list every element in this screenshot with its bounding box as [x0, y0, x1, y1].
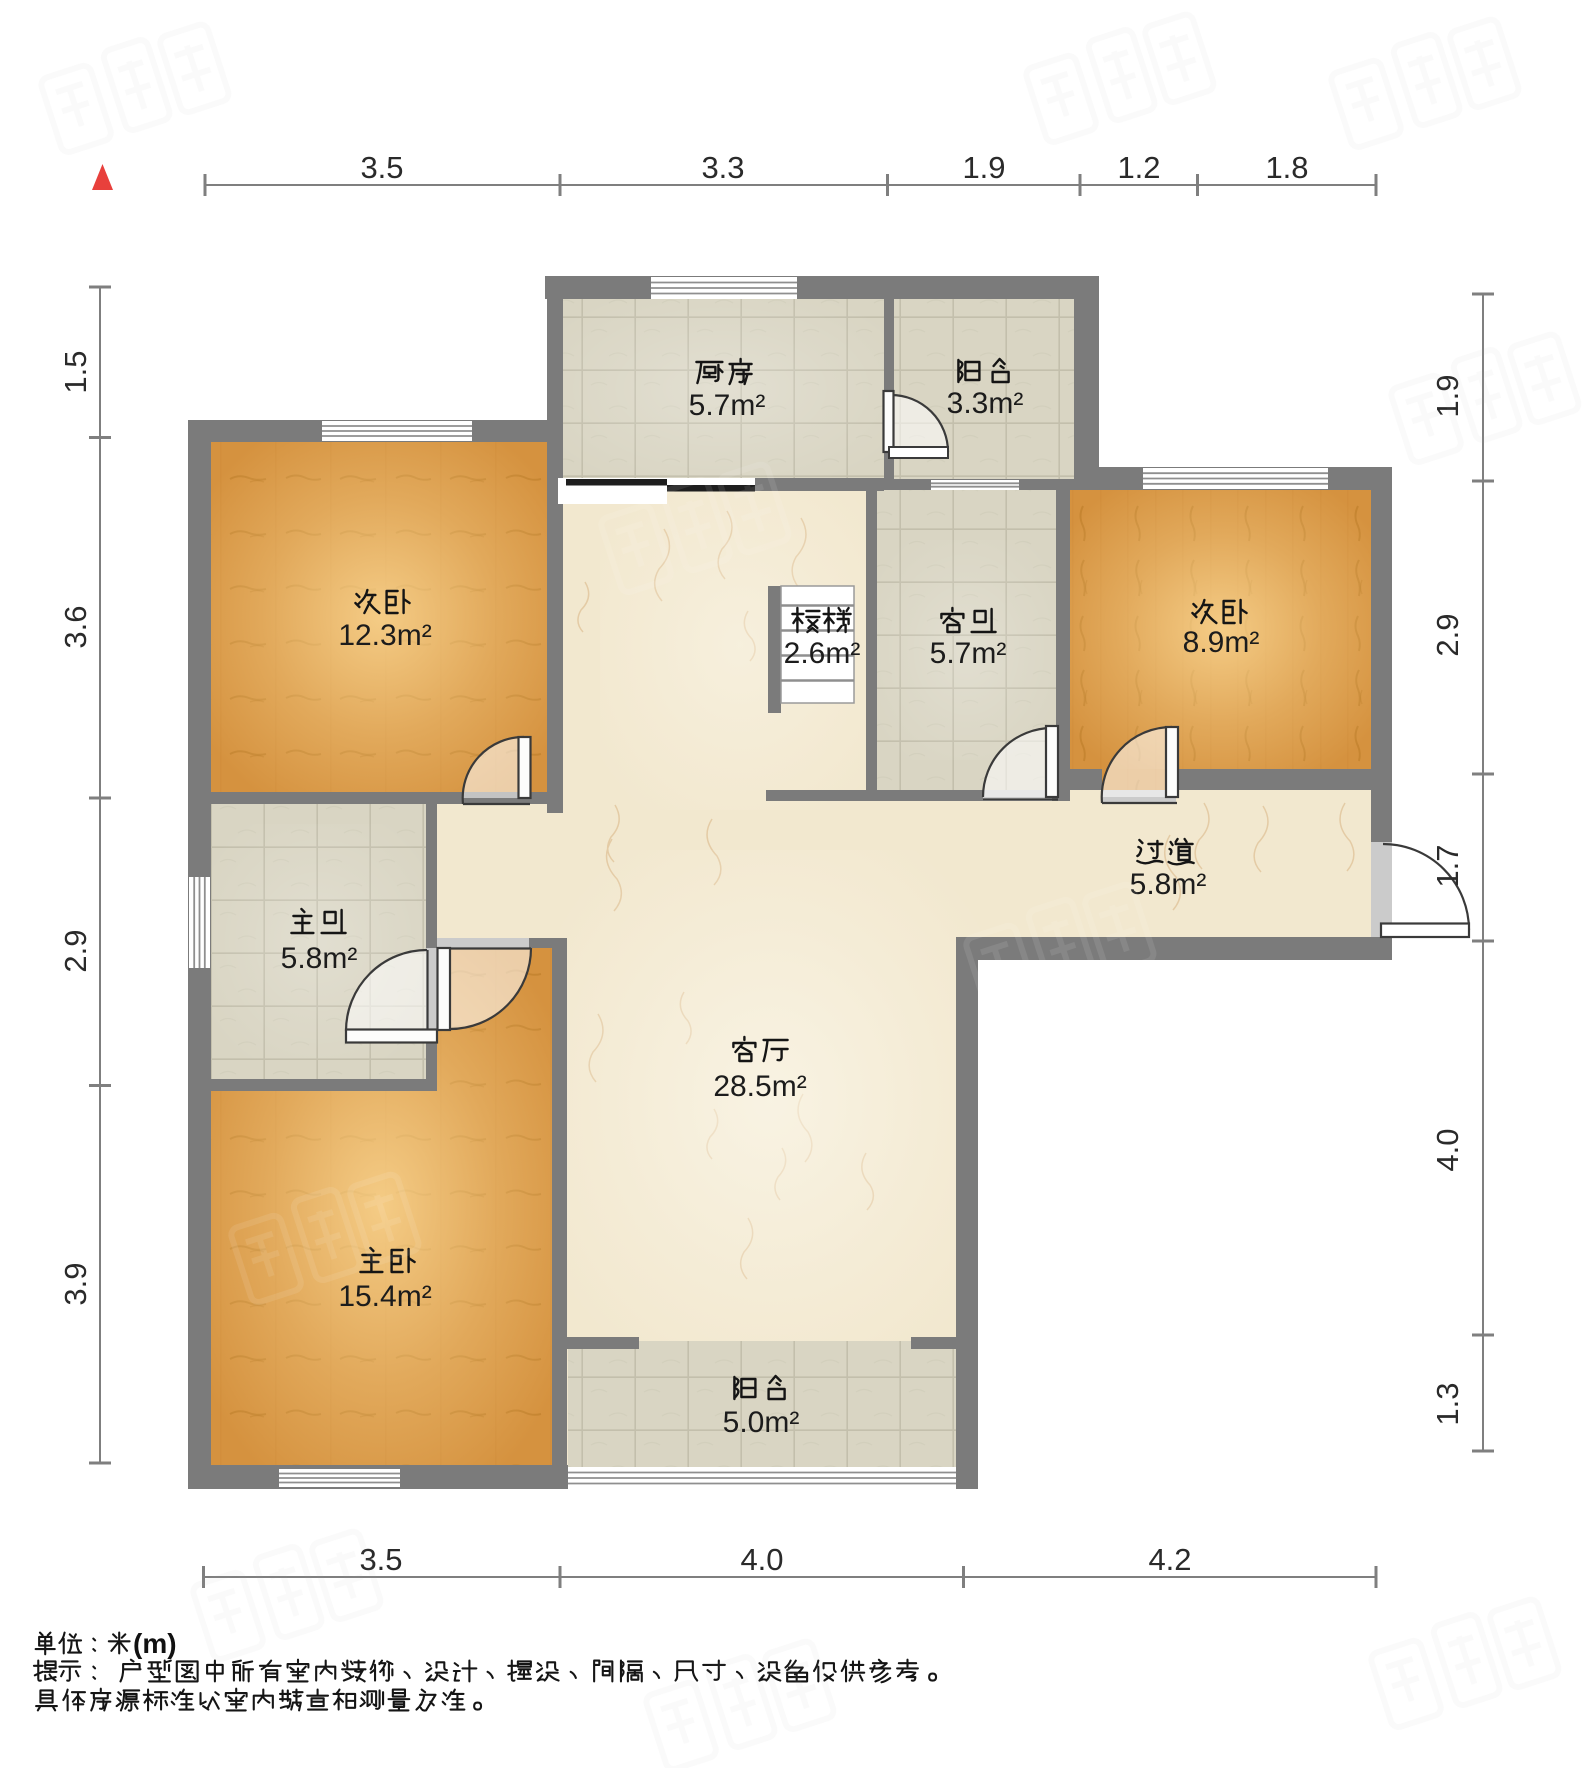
svg-text:4.0: 4.0	[740, 1542, 783, 1577]
svg-text:5.8m²: 5.8m²	[1130, 868, 1207, 901]
svg-text:1.9: 1.9	[962, 150, 1005, 185]
svg-text:1.7: 1.7	[1430, 844, 1465, 887]
svg-text:3.5: 3.5	[360, 150, 403, 185]
svg-text:15.4m²: 15.4m²	[338, 1280, 431, 1313]
svg-text:2.6m²: 2.6m²	[784, 637, 861, 670]
svg-text:5.8m²: 5.8m²	[281, 942, 358, 975]
svg-text:(m): (m)	[133, 1628, 177, 1659]
svg-text:3.9: 3.9	[58, 1262, 93, 1305]
svg-text:5.0m²: 5.0m²	[723, 1406, 800, 1439]
svg-text:3.6: 3.6	[58, 605, 93, 648]
svg-text:4.0: 4.0	[1430, 1128, 1465, 1171]
svg-text:8.9m²: 8.9m²	[1183, 626, 1260, 659]
svg-text:3.3m²: 3.3m²	[947, 387, 1024, 420]
svg-text:3.3: 3.3	[701, 150, 744, 185]
svg-text:1.2: 1.2	[1117, 150, 1160, 185]
svg-text:2.9: 2.9	[1430, 613, 1465, 656]
svg-text:4.2: 4.2	[1148, 1542, 1191, 1577]
svg-text:5.7m²: 5.7m²	[930, 637, 1007, 670]
svg-text:2.9: 2.9	[58, 929, 93, 972]
svg-text:1.8: 1.8	[1265, 150, 1308, 185]
svg-text:28.5m²: 28.5m²	[713, 1070, 806, 1103]
svg-text:1.3: 1.3	[1430, 1382, 1465, 1425]
svg-text:5.7m²: 5.7m²	[689, 389, 766, 422]
svg-text:12.3m²: 12.3m²	[338, 619, 431, 652]
svg-text:1.5: 1.5	[58, 350, 93, 393]
